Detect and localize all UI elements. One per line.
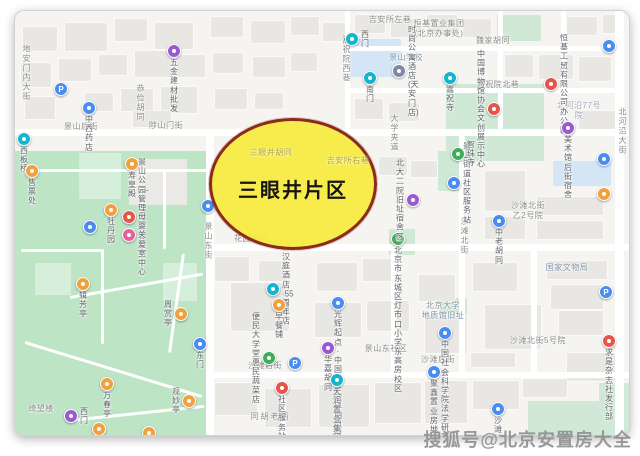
poi-marker[interactable]: 观妙亭 xyxy=(182,394,196,408)
poi-pin-icon[interactable] xyxy=(182,394,196,408)
poi-label: 东门 xyxy=(196,351,204,369)
street-label: 沙滩北街5号院 xyxy=(510,336,566,346)
poi-marker[interactable]: 中西药店 xyxy=(82,101,96,115)
poi-label: 五金建材批发 xyxy=(170,58,178,113)
poi-label: 北京市东城区灯市口 小学东高房校区 xyxy=(394,246,402,393)
poi-marker[interactable]: 寿皇殿 xyxy=(125,157,139,171)
poi-pin-icon[interactable] xyxy=(167,44,181,58)
poi-label: 西门 xyxy=(361,30,369,48)
poi-label: 智珠寺 xyxy=(467,140,475,168)
poi-label: 辑芳亭 xyxy=(79,291,87,319)
poi-marker[interactable]: 汉庭酒店·55周年店 xyxy=(266,282,280,296)
poi-marker[interactable]: 西门 xyxy=(64,409,78,423)
street-label: 吉安所右巷 xyxy=(327,156,370,166)
poi-label: 售票处 xyxy=(28,178,36,206)
parking-icon[interactable]: P xyxy=(288,356,302,370)
poi-marker[interactable]: 景山公园-管理处 游客服务中心 xyxy=(122,210,136,224)
street-label: 吉安所左巷 xyxy=(369,15,412,25)
poi-marker[interactable]: 母婴关爱室 xyxy=(122,228,136,242)
poi-pin-icon[interactable] xyxy=(597,152,611,166)
poi-label: 牡丹园 xyxy=(107,217,115,245)
poi-marker[interactable]: 中老胡同 xyxy=(492,214,506,228)
poi-label: 汉庭酒店·55周年店 xyxy=(282,252,294,326)
poi-marker[interactable]: 西门 xyxy=(345,32,359,46)
poi-pin-icon[interactable] xyxy=(272,298,286,312)
poi-pin-icon[interactable] xyxy=(492,214,506,228)
poi-label: 中国博物馆协会 文创展示中心 xyxy=(477,49,485,168)
poi-label: 天润置业集团北京房地 产开发经营总公司 xyxy=(333,387,341,436)
street-label: 北河沿大街 xyxy=(617,107,627,155)
map-canvas[interactable]: 地安门内大街景山后街陟山门街恭俭胡同景山东街嵩祝院西巷吉安所左巷魏家胡同嵩祝院北… xyxy=(14,10,630,436)
poi-pin-icon[interactable] xyxy=(330,373,344,387)
street-label: 恭俭胡同 xyxy=(135,84,145,122)
poi-marker[interactable]: 五金建材批发 xyxy=(167,44,181,58)
street-label: 绮望楼 xyxy=(28,404,54,414)
poi-label: 中老胡同 xyxy=(495,228,503,265)
parking-icon[interactable]: P xyxy=(54,82,68,96)
poi-pin-icon[interactable] xyxy=(427,365,441,379)
poi-label: 社区服务站 xyxy=(278,395,286,436)
poi-pin-icon[interactable] xyxy=(602,334,616,348)
poi-marker[interactable]: 智珠寺 xyxy=(451,147,465,161)
poi-marker[interactable]: 社区服务站 xyxy=(275,381,289,395)
poi-label: 中西药店 xyxy=(85,115,93,152)
poi-pin-icon[interactable] xyxy=(104,203,118,217)
poi-pin-icon[interactable] xyxy=(491,402,505,416)
street-label: 沙滩北街 乙2号院 xyxy=(511,201,545,221)
poi-label: 早餐铺 xyxy=(275,312,283,340)
poi-pin-icon[interactable] xyxy=(100,377,114,391)
poi-pin-icon[interactable] xyxy=(544,77,558,91)
poi-pin-icon[interactable] xyxy=(17,132,31,146)
poi-pin-icon[interactable] xyxy=(438,326,452,340)
poi-pin-icon[interactable] xyxy=(561,121,575,135)
poi-pin-icon[interactable] xyxy=(83,220,97,234)
poi-marker[interactable]: 南门 xyxy=(363,71,377,85)
poi-marker[interactable]: 早餐铺 xyxy=(272,298,286,312)
poi-marker[interactable]: 沙滩社区 综合服务站 xyxy=(491,402,505,416)
poi-marker[interactable]: 便民大学堂 惠民蔬菜店 xyxy=(262,351,276,365)
poi-label: 美术馆后街宿舍 xyxy=(564,135,572,199)
poi-pin-icon[interactable] xyxy=(262,351,276,365)
poi-label: 母婴关爱室 xyxy=(138,212,146,258)
parking-icon[interactable]: P xyxy=(599,285,613,299)
poi-marker[interactable] xyxy=(597,187,611,201)
poi-pin-icon[interactable] xyxy=(193,337,207,351)
poi-pin-icon[interactable] xyxy=(125,157,139,171)
poi-pin-icon[interactable] xyxy=(443,71,457,85)
poi-label: 北大二院旧址 宿舍区 xyxy=(396,159,404,242)
poi-marker[interactable]: 景山街道 社区服务站 xyxy=(447,176,461,190)
highlight-area-ellipse: 三眼井片区 xyxy=(209,118,377,250)
poi-marker[interactable]: 北大二院旧址 宿舍区 xyxy=(406,193,420,207)
poi-pin-icon[interactable] xyxy=(122,210,136,224)
poi-marker[interactable]: 牡丹园 xyxy=(104,203,118,217)
poi-marker[interactable]: 西板桥 xyxy=(17,132,31,146)
street-label: 地安门内大街 xyxy=(21,45,31,102)
street-label: 三眼井胡同 xyxy=(250,148,293,158)
poi-marker[interactable]: 售票处 xyxy=(25,164,39,178)
poi-pin-icon[interactable] xyxy=(275,381,289,395)
street-label: 沙滩后街 xyxy=(421,355,455,365)
highlight-area-label: 三眼井片区 xyxy=(238,174,348,203)
poi-pin-icon[interactable] xyxy=(451,147,465,161)
poi-label: 周赏亭 xyxy=(164,300,172,328)
poi-label: 嵩祝寺 xyxy=(446,85,454,113)
street-label: 陟山门街 xyxy=(149,121,183,131)
watermark-text: 搜狐号@北京安置房大全 xyxy=(423,426,632,452)
poi-marker[interactable]: 中国博物馆协会 文创展示中心 xyxy=(487,102,501,116)
poi-pin-icon[interactable] xyxy=(602,39,616,53)
poi-label: 西门 xyxy=(80,407,88,425)
street-label: 魏家胡同 xyxy=(476,36,510,46)
poi-marker[interactable]: 周赏亭 xyxy=(174,307,188,321)
poi-marker[interactable]: 时尚公寓酒店 (天安门店) xyxy=(392,64,406,78)
poi-label: 中国社会科学院 法学研究所 xyxy=(441,340,449,436)
poi-marker[interactable]: 求是杂志社 发行部 xyxy=(602,334,616,348)
street-label: 恒基置业集团 (北京办事处) xyxy=(414,19,465,39)
poi-marker[interactable]: P xyxy=(288,356,302,370)
street-label: 大学夹道 xyxy=(389,114,399,152)
poi-marker[interactable] xyxy=(92,422,106,436)
poi-pin-icon[interactable] xyxy=(122,228,136,242)
poi-marker[interactable]: 光辉起点·中国共产党 早期组织纪念馆 xyxy=(331,296,345,310)
poi-pin-icon[interactable] xyxy=(321,341,335,355)
poi-pin-icon[interactable] xyxy=(345,32,359,46)
poi-marker[interactable]: 万春亭 xyxy=(100,377,114,391)
poi-pin-icon[interactable] xyxy=(331,296,345,310)
poi-marker[interactable]: 嵩祝寺 xyxy=(443,71,457,85)
poi-pin-icon[interactable] xyxy=(142,426,156,436)
poi-label: 便民大学堂 惠民蔬菜店 xyxy=(252,312,260,404)
poi-marker[interactable]: 美术馆后街宿舍 xyxy=(561,121,575,135)
poi-pin-icon[interactable] xyxy=(597,187,611,201)
poi-label: 南门 xyxy=(366,85,374,103)
poi-marker[interactable] xyxy=(597,152,611,166)
poi-pin-icon[interactable] xyxy=(487,102,501,116)
poi-label: 寿皇殿 xyxy=(128,171,136,199)
poi-pin-icon[interactable] xyxy=(363,71,377,85)
poi-marker[interactable]: P xyxy=(54,82,68,96)
poi-label: 万春亭 xyxy=(103,391,111,419)
poi-pin-icon[interactable] xyxy=(447,176,461,190)
street-label: 景山东街 xyxy=(203,222,213,260)
poi-marker[interactable] xyxy=(602,39,616,53)
poi-marker[interactable]: 华嘉胡同 xyxy=(321,341,335,355)
poi-pin-icon[interactable] xyxy=(92,422,106,436)
street-label: 国家文物局 xyxy=(546,263,589,273)
poi-marker[interactable]: 辑芳亭 xyxy=(76,277,90,291)
poi-label: 恒基工贸有限公司 办公区 xyxy=(560,33,568,134)
poi-marker[interactable] xyxy=(142,426,156,436)
poi-label: 求是杂志社 发行部 xyxy=(605,348,613,422)
poi-marker[interactable]: P xyxy=(599,285,613,299)
poi-pin-icon[interactable] xyxy=(82,101,96,115)
poi-pin-icon[interactable] xyxy=(25,164,39,178)
poi-pin-icon[interactable] xyxy=(64,409,78,423)
poi-pin-icon[interactable] xyxy=(266,282,280,296)
poi-marker[interactable]: 东门 xyxy=(193,337,207,351)
poi-marker[interactable]: 恒基工贸有限公司 办公区 xyxy=(544,77,558,91)
poi-marker[interactable]: 中国社会科学院 法学研究所 xyxy=(438,326,452,340)
poi-label: 时尚公寓酒店 (天安门店) xyxy=(408,25,419,117)
poi-pin-icon[interactable] xyxy=(76,277,90,291)
poi-label: 观妙亭 xyxy=(172,387,180,415)
poi-marker[interactable]: 天润置业集团北京房地 产开发经营总公司 xyxy=(330,373,344,387)
poi-pin-icon[interactable] xyxy=(174,307,188,321)
poi-marker[interactable] xyxy=(83,220,97,234)
poi-marker[interactable]: 聚鑫置业房地产 经纪公司 xyxy=(427,365,441,379)
poi-pin-icon[interactable] xyxy=(406,193,420,207)
poi-pin-icon[interactable] xyxy=(392,64,406,78)
street-label: 北京大学 地质馆旧址 xyxy=(422,301,465,321)
